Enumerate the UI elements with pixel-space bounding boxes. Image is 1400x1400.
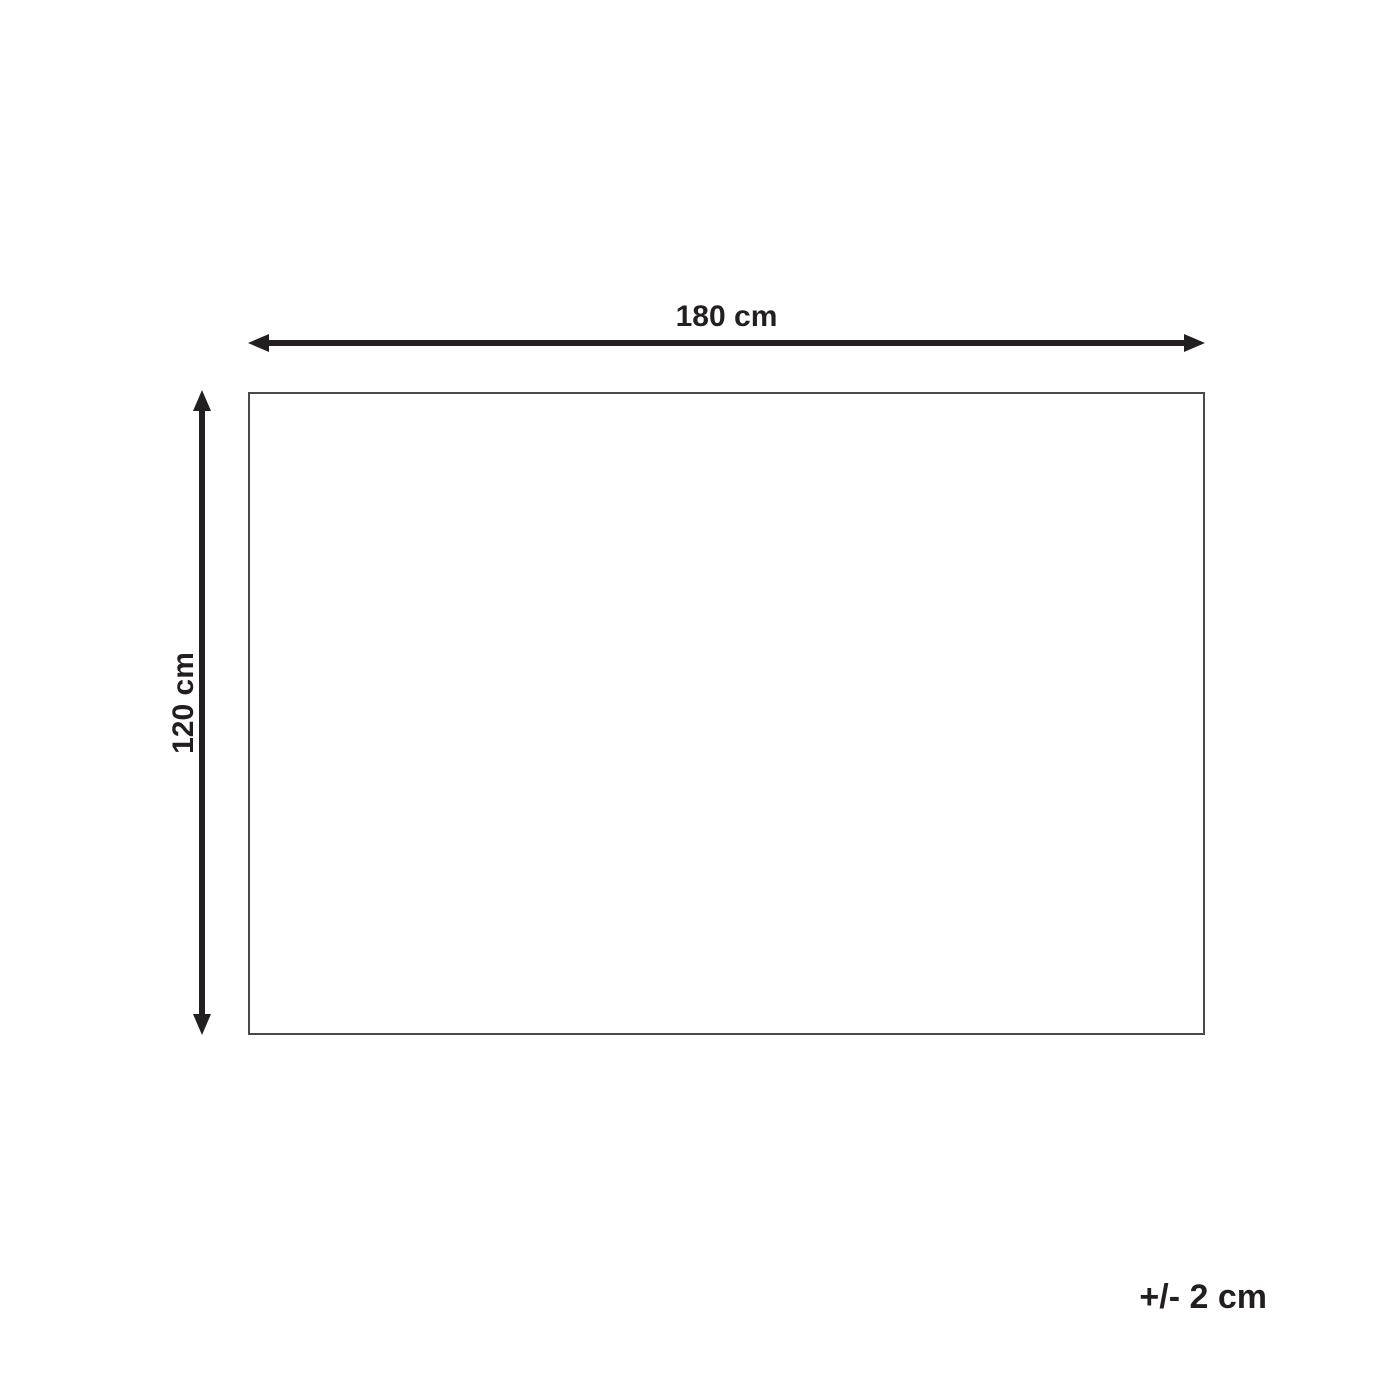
tolerance-label: +/- 2 cm [1139,1280,1267,1314]
dimension-diagram: 180 cm 120 cm +/- 2 cm [0,0,1400,1400]
height-dimension-label: 120 cm [169,652,199,754]
width-dimension-label: 180 cm [248,302,1205,332]
arrowhead-left-icon [248,334,269,352]
arrowhead-bottom-icon [193,1014,211,1035]
arrowhead-top-icon [193,390,211,411]
arrowhead-right-icon [1184,334,1205,352]
product-outline-rect [248,392,1205,1035]
horizontal-dimension-arrow [248,333,1205,353]
